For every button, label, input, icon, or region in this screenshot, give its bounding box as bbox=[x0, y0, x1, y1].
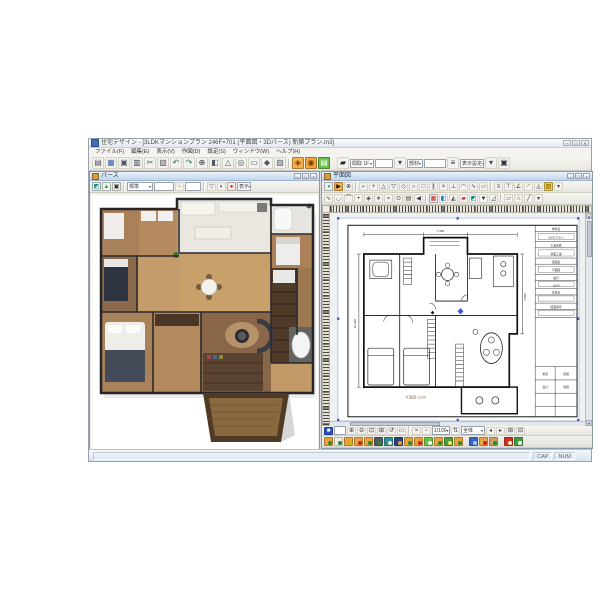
plan-toolbar-2-item-14[interactable]: ▰ bbox=[459, 194, 468, 203]
plan-bottom-toolbar-item-12[interactable]: ⇅ bbox=[451, 427, 460, 435]
perspective-titlebar: パース –□× bbox=[90, 172, 319, 181]
svg-text:設計: 設計 bbox=[542, 385, 548, 389]
main-toolbar-item-10[interactable]: △ bbox=[222, 157, 234, 169]
main-toolbar-item-12[interactable]: ▭ bbox=[248, 157, 260, 169]
layer-toolbar-item-20[interactable] bbox=[514, 437, 523, 446]
plan-bottom-toolbar-item-1[interactable] bbox=[334, 426, 346, 435]
app-title: 住宅デザイン - [3LDKマンションプラン 246F×701 (平面図・3Dパ… bbox=[101, 139, 334, 147]
perspective-toolbar-item-7[interactable] bbox=[185, 182, 201, 191]
svg-text:1/100: 1/100 bbox=[553, 283, 560, 287]
plan-toolbar-1-item-11[interactable]: ∥ bbox=[429, 182, 438, 191]
perspective-toolbar-item-8 bbox=[203, 182, 205, 191]
perspective-window: パース –□× ◩▲▣標準▾▫▽◐●表示▾ bbox=[89, 171, 320, 451]
plan-bottom-toolbar-item-11[interactable]: 1/100▾ bbox=[432, 426, 450, 435]
plan-toolbar-2-item-21[interactable]: ╱ bbox=[524, 194, 533, 203]
layer-toolbar bbox=[322, 436, 592, 448]
plan-toolbar-1-item-1[interactable]: ▶ bbox=[334, 182, 343, 191]
layer-toolbar-item-11[interactable] bbox=[434, 437, 443, 446]
perspective-toolbar-item-6[interactable]: ▫ bbox=[175, 182, 184, 191]
plan-bottom-toolbar-item-15[interactable]: ▸ bbox=[496, 427, 505, 435]
plan-bottom-toolbar: ■⊕⊖⊡⊞↺▭≈▫1/100▾⇅全体▾◂▸⊞⊟ bbox=[322, 426, 592, 436]
plan-toolbar-2-item-5[interactable]: ∗ bbox=[374, 194, 383, 203]
perspective-toolbar-item-1[interactable]: ▲ bbox=[102, 182, 111, 191]
perspective-toolbar-item-5[interactable] bbox=[154, 182, 174, 191]
horizontal-scrollbar[interactable] bbox=[330, 421, 585, 426]
perspective-window-buttons: –□× bbox=[294, 173, 317, 179]
plan-window-button-0[interactable]: – bbox=[567, 173, 574, 179]
plan-bottom-toolbar-item-5[interactable]: ⊞ bbox=[377, 427, 386, 435]
perspective-toolbar-item-4[interactable]: 標準▾ bbox=[127, 182, 153, 191]
main-toolbar-item-1[interactable]: ▦ bbox=[105, 157, 117, 169]
main-toolbar-item-7[interactable]: ↷ bbox=[183, 157, 195, 169]
layer-toolbar-item-17[interactable] bbox=[489, 437, 498, 446]
perspective-toolbar-item-10[interactable]: ◐ bbox=[217, 182, 226, 191]
layer-toolbar-item-13[interactable] bbox=[454, 437, 463, 446]
layer-toolbar-item-19[interactable] bbox=[504, 437, 513, 446]
plan-toolbar-2-item-17[interactable]: ◿ bbox=[489, 194, 498, 203]
svg-text:作成日: 作成日 bbox=[552, 290, 561, 294]
app-icon bbox=[91, 139, 99, 147]
plan-toolbar-2-item-12[interactable]: ◧ bbox=[439, 194, 448, 203]
main-toolbar-item-2[interactable]: ▣ bbox=[118, 157, 130, 169]
mdi-workspace: パース –□× ◩▲▣標準▾▫▽◐●表示▾ bbox=[89, 171, 591, 449]
plan-toolbar-1-item-5[interactable]: + bbox=[369, 182, 378, 191]
main-toolbar-item-18[interactable]: ▤ bbox=[318, 157, 330, 169]
main-toolbar-item-16[interactable]: ◈ bbox=[292, 157, 304, 169]
plan-toolbar-2-item-1[interactable]: ◡ bbox=[334, 194, 343, 203]
layer-toolbar-item-3[interactable] bbox=[354, 437, 363, 446]
plan-toolbar-2-item-9[interactable]: ◀ bbox=[414, 194, 423, 203]
plan-bottom-toolbar-item-3[interactable]: ⊖ bbox=[357, 427, 366, 435]
vertical-scrollbar[interactable]: ▲ ▼ bbox=[585, 213, 592, 426]
layer-toolbar-item-2[interactable] bbox=[344, 437, 353, 446]
plan-toolbar-1-item-6[interactable]: △ bbox=[379, 182, 388, 191]
layer-toolbar-item-9[interactable] bbox=[414, 437, 423, 446]
main-toolbar-item-27[interactable]: 表示設定▾ bbox=[460, 159, 484, 168]
svg-text:物件名: 物件名 bbox=[552, 227, 561, 231]
main-toolbar-item-17[interactable]: ◉ bbox=[305, 157, 317, 169]
plan-bottom-toolbar-item-0[interactable]: ■ bbox=[324, 427, 333, 435]
svg-text:3LDKプラン: 3LDKプラン bbox=[548, 235, 563, 239]
app-window-buttons: –□× bbox=[563, 140, 589, 146]
menu-item-0[interactable]: ファイル(F) bbox=[92, 149, 127, 156]
perspective-toolbar-item-12[interactable]: 表示▾ bbox=[237, 182, 251, 191]
plan-toolbar-1-item-0[interactable]: ◑ bbox=[324, 182, 333, 191]
layer-toolbar-item-16[interactable] bbox=[479, 437, 488, 446]
perspective-window-button-2[interactable]: × bbox=[310, 173, 317, 179]
3d-floorplan-render bbox=[91, 195, 318, 449]
layer-toolbar-item-6[interactable] bbox=[384, 437, 393, 446]
perspective-title: パース bbox=[101, 172, 119, 180]
svg-text:図面番号: 図面番号 bbox=[551, 305, 562, 309]
layer-toolbar-item-4[interactable] bbox=[364, 437, 373, 446]
app-window-button-2[interactable]: × bbox=[581, 140, 589, 146]
plan-toolbar-1-item-22[interactable]: ◬ bbox=[534, 182, 543, 191]
plan-toolbar-1-item-12[interactable]: × bbox=[439, 182, 448, 191]
floorplan-drawing: 7,280 10,920 4,550 平面図 1/100 bbox=[330, 213, 585, 426]
plan-toolbar-1-item-7[interactable]: ▽ bbox=[389, 182, 398, 191]
svg-text:図面名: 図面名 bbox=[552, 260, 561, 264]
svg-text:平面図: 平面図 bbox=[552, 268, 561, 272]
menu-item-1[interactable]: 編集(E) bbox=[128, 149, 152, 156]
plan-window-icon bbox=[324, 173, 331, 180]
plan-toolbar-1-item-4[interactable]: ⌐ bbox=[359, 182, 368, 191]
plan-bottom-toolbar-item-16[interactable]: ⊞ bbox=[506, 427, 515, 435]
svg-text:10,920: 10,920 bbox=[353, 319, 357, 329]
menu-item-2[interactable]: 表示(V) bbox=[153, 149, 177, 156]
layer-toolbar-item-8[interactable] bbox=[404, 437, 413, 446]
svg-text:承認: 承認 bbox=[542, 372, 548, 376]
plan-bottom-toolbar-item-14[interactable]: ◂ bbox=[486, 427, 495, 435]
main-toolbar-item-13[interactable]: ◆ bbox=[261, 157, 273, 169]
plan-toolbar-1-item-13[interactable]: ⊥ bbox=[449, 182, 458, 191]
layer-toolbar-item-0[interactable] bbox=[324, 437, 333, 446]
svg-text:工事名称: 工事名称 bbox=[551, 243, 562, 247]
menu-item-5[interactable]: ウィンドウ(W) bbox=[230, 149, 272, 156]
main-toolbar-item-14[interactable]: ▨ bbox=[274, 157, 286, 169]
plan-toolbar-2-item-10 bbox=[425, 194, 427, 203]
plan-bottom-toolbar-item-9[interactable]: ≈ bbox=[412, 427, 421, 435]
plan-toolbar-1-item-24[interactable]: ▾ bbox=[554, 182, 563, 191]
svg-text:7,280: 7,280 bbox=[437, 229, 445, 233]
status-bar: CAPNUM bbox=[89, 449, 591, 461]
app-window-button-0[interactable]: – bbox=[563, 140, 571, 146]
perspective-toolbar: ◩▲▣標準▾▫▽◐●表示▾ bbox=[90, 181, 319, 193]
plan-bottom-toolbar-item-7[interactable]: ▭ bbox=[397, 427, 406, 435]
perspective-toolbar-item-9[interactable]: ▽ bbox=[207, 182, 216, 191]
application-window: 住宅デザイン - [3LDKマンションプラン 246F×701 (平面図・3Dパ… bbox=[88, 138, 592, 462]
plan-toolbar-1-item-20[interactable]: ∠ bbox=[514, 182, 523, 191]
plan-bottom-toolbar-item-2[interactable]: ⊕ bbox=[347, 427, 356, 435]
plan-toolbar-1-item-18[interactable]: ≡ bbox=[494, 182, 503, 191]
perspective-window-button-0[interactable]: – bbox=[294, 173, 301, 179]
ruler-row bbox=[322, 205, 592, 213]
vertical-ruler bbox=[322, 213, 330, 426]
plan-bottom-toolbar-item-13[interactable]: 全体▾ bbox=[461, 426, 485, 435]
perspective-canvas[interactable] bbox=[91, 195, 318, 449]
main-toolbar-item-9[interactable]: ◧ bbox=[209, 157, 221, 169]
plan-toolbar-1-item-15[interactable]: ∿ bbox=[469, 182, 478, 191]
plan-toolbar-2-item-19[interactable]: ▱ bbox=[504, 194, 513, 203]
layer-toolbar-item-12[interactable] bbox=[444, 437, 453, 446]
perspective-window-button-1[interactable]: □ bbox=[302, 173, 309, 179]
app-window-button-1[interactable]: □ bbox=[572, 140, 580, 146]
plan-toolbar-2-item-3[interactable]: • bbox=[354, 194, 363, 203]
main-toolbar-item-28[interactable]: ▾ bbox=[485, 157, 497, 169]
plan-toolbar-1-item-10[interactable]: □ bbox=[419, 182, 428, 191]
menu-item-6[interactable]: ヘルプ(H) bbox=[273, 149, 303, 156]
ruler-corner bbox=[322, 205, 330, 213]
plan-scale-label: 平面図 1/100 bbox=[405, 394, 426, 399]
plan-window-buttons: –□× bbox=[567, 173, 590, 179]
plan-toolbar-2-item-18 bbox=[500, 194, 502, 203]
plan-toolbar-2-item-0[interactable]: ∿ bbox=[324, 194, 333, 203]
status-message-panel bbox=[93, 452, 530, 460]
plan-window: 平面図 –□× ◑▶⊕⌐+△▽◇○□∥×⊥◠∿▱≡⊤∠◜◬▨▾ ∿◡⌒•◈∗≈⊙… bbox=[321, 171, 593, 449]
plan-toolbar-2-item-8[interactable]: ▤ bbox=[404, 194, 413, 203]
perspective-toolbar-item-0[interactable]: ◩ bbox=[92, 182, 101, 191]
plan-titlebar: 平面図 –□× bbox=[322, 172, 592, 181]
main-toolbar-item-20[interactable]: ▰ bbox=[337, 157, 349, 169]
main-toolbar-item-5[interactable]: ▧ bbox=[157, 157, 169, 169]
main-toolbar-item-21[interactable]: 間取 1F▾ bbox=[350, 159, 374, 168]
plan-canvas-row: 7,280 10,920 4,550 平面図 1/100 bbox=[322, 213, 592, 426]
plan-bottom-toolbar-item-10[interactable]: ▫ bbox=[422, 427, 431, 435]
plan-toolbar-2-item-15[interactable]: ◩ bbox=[469, 194, 478, 203]
plan-toolbar-1-item-23[interactable]: ▨ bbox=[544, 182, 553, 191]
main-toolbar-item-3[interactable]: ▥ bbox=[131, 157, 143, 169]
scroll-down-arrow[interactable]: ▼ bbox=[586, 420, 592, 426]
plan-toolbar-2-item-6[interactable]: ≈ bbox=[384, 194, 393, 203]
svg-text:製図: 製図 bbox=[563, 385, 569, 389]
perspective-window-icon bbox=[92, 173, 99, 180]
main-toolbar-item-0[interactable]: ▤ bbox=[92, 157, 104, 169]
perspective-toolbar-item-3 bbox=[123, 182, 125, 191]
svg-text:縮尺: 縮尺 bbox=[553, 276, 559, 280]
layer-toolbar-item-7[interactable] bbox=[394, 437, 403, 446]
main-toolbar-item-29[interactable]: ▣ bbox=[498, 157, 510, 169]
plan-toolbar-2-item-16[interactable]: ▼ bbox=[479, 194, 488, 203]
menu-item-3[interactable]: 作図(D) bbox=[179, 149, 204, 156]
plan-toolbar-1-item-16[interactable]: ▱ bbox=[479, 182, 488, 191]
horizontal-ruler bbox=[330, 205, 592, 213]
plan-title: 平面図 bbox=[333, 172, 351, 180]
plan-toolbar-2-item-7[interactable]: ⊙ bbox=[394, 194, 403, 203]
plan-toolbar-2: ∿◡⌒•◈∗≈⊙▤◀▦◧◭▰◩▼◿▱∴╱▾ bbox=[322, 193, 592, 205]
perspective-toolbar-item-11[interactable]: ● bbox=[227, 182, 236, 191]
paper-sheet bbox=[338, 218, 579, 421]
status-cell-1: NUM bbox=[554, 452, 575, 460]
plan-window-button-2[interactable]: × bbox=[583, 173, 590, 179]
perspective-toolbar-item-2[interactable]: ▣ bbox=[112, 182, 121, 191]
svg-text:検図: 検図 bbox=[563, 372, 569, 376]
menu-item-4[interactable]: 設定(S) bbox=[204, 149, 228, 156]
layer-toolbar-item-5[interactable] bbox=[374, 437, 383, 446]
layer-toolbar-item-10[interactable] bbox=[424, 437, 433, 446]
plan-toolbar-2-item-4[interactable]: ◈ bbox=[364, 194, 373, 203]
plan-canvas[interactable]: 7,280 10,920 4,550 平面図 1/100 bbox=[330, 213, 585, 426]
plan-window-button-1[interactable]: □ bbox=[575, 173, 582, 179]
plan-bottom-toolbar-item-8 bbox=[408, 426, 410, 435]
app-titlebar: 住宅デザイン - [3LDKマンションプラン 246F×701 (平面図・3Dパ… bbox=[89, 139, 591, 148]
main-toolbar-item-25[interactable] bbox=[424, 159, 446, 168]
plan-bottom-toolbar-item-4[interactable]: ⊡ bbox=[367, 427, 376, 435]
plan-toolbar-2-item-20[interactable]: ∴ bbox=[514, 194, 523, 203]
main-toolbar-item-22[interactable] bbox=[375, 159, 393, 168]
plan-toolbar-1-item-8[interactable]: ◇ bbox=[399, 182, 408, 191]
main-toolbar-item-11[interactable]: ◎ bbox=[235, 157, 247, 169]
main-toolbar-item-4[interactable]: ✂ bbox=[144, 157, 156, 169]
svg-text:4,550: 4,550 bbox=[523, 293, 527, 301]
main-toolbar-item-26[interactable]: ≡ bbox=[447, 157, 459, 169]
plan-toolbar-1-item-2[interactable]: ⊕ bbox=[344, 182, 353, 191]
status-cells: CAPNUM bbox=[533, 452, 575, 460]
main-toolbar: ▤▦▣▥✂▧↶↷⊕◧△◎▭◆▨◈◉▤▰間取 1F▾▾部材▾≡表示設定▾▾▣ bbox=[89, 156, 591, 171]
plan-toolbar-2-item-2[interactable]: ⌒ bbox=[344, 194, 353, 203]
plan-toolbar-1-item-9[interactable]: ○ bbox=[409, 182, 418, 191]
main-toolbar-item-24[interactable]: 部材▾ bbox=[407, 159, 423, 168]
plan-toolbar-2-item-22[interactable]: ▾ bbox=[534, 194, 543, 203]
plan-toolbar-1-item-14[interactable]: ◠ bbox=[459, 182, 468, 191]
scroll-up-arrow[interactable]: ▲ bbox=[586, 213, 592, 219]
main-toolbar-item-8[interactable]: ⊕ bbox=[196, 157, 208, 169]
status-cell-0: CAP bbox=[533, 452, 552, 460]
plan-toolbar-1: ◑▶⊕⌐+△▽◇○□∥×⊥◠∿▱≡⊤∠◜◬▨▾ bbox=[322, 181, 592, 193]
layer-toolbar-item-15[interactable] bbox=[469, 437, 478, 446]
plan-toolbar-2-item-13[interactable]: ◭ bbox=[449, 194, 458, 203]
plan-toolbar-1-item-21[interactable]: ◜ bbox=[524, 182, 533, 191]
plan-toolbar-1-item-17 bbox=[490, 182, 492, 191]
plan-toolbar-1-item-19[interactable]: ⊤ bbox=[504, 182, 513, 191]
plan-bottom-toolbar-item-6[interactable]: ↺ bbox=[387, 427, 396, 435]
main-toolbar-item-15 bbox=[288, 159, 290, 168]
vertical-scroll-thumb[interactable] bbox=[587, 221, 592, 257]
layer-toolbar-item-1[interactable] bbox=[334, 437, 343, 446]
plan-toolbar-1-item-3 bbox=[355, 182, 357, 191]
main-toolbar-item-6[interactable]: ↶ bbox=[170, 157, 182, 169]
screenshot-stage: 住宅デザイン - [3LDKマンションプラン 246F×701 (平面図・3Dパ… bbox=[0, 0, 600, 600]
plan-bottom-toolbar-item-17[interactable]: ⊟ bbox=[516, 427, 525, 435]
main-toolbar-item-23[interactable]: ▾ bbox=[394, 157, 406, 169]
horizontal-scroll-thumb[interactable] bbox=[350, 422, 440, 426]
plan-toolbar-2-item-11[interactable]: ▦ bbox=[429, 194, 438, 203]
balcony bbox=[203, 393, 295, 442]
svg-text:新築工事: 新築工事 bbox=[551, 252, 562, 256]
